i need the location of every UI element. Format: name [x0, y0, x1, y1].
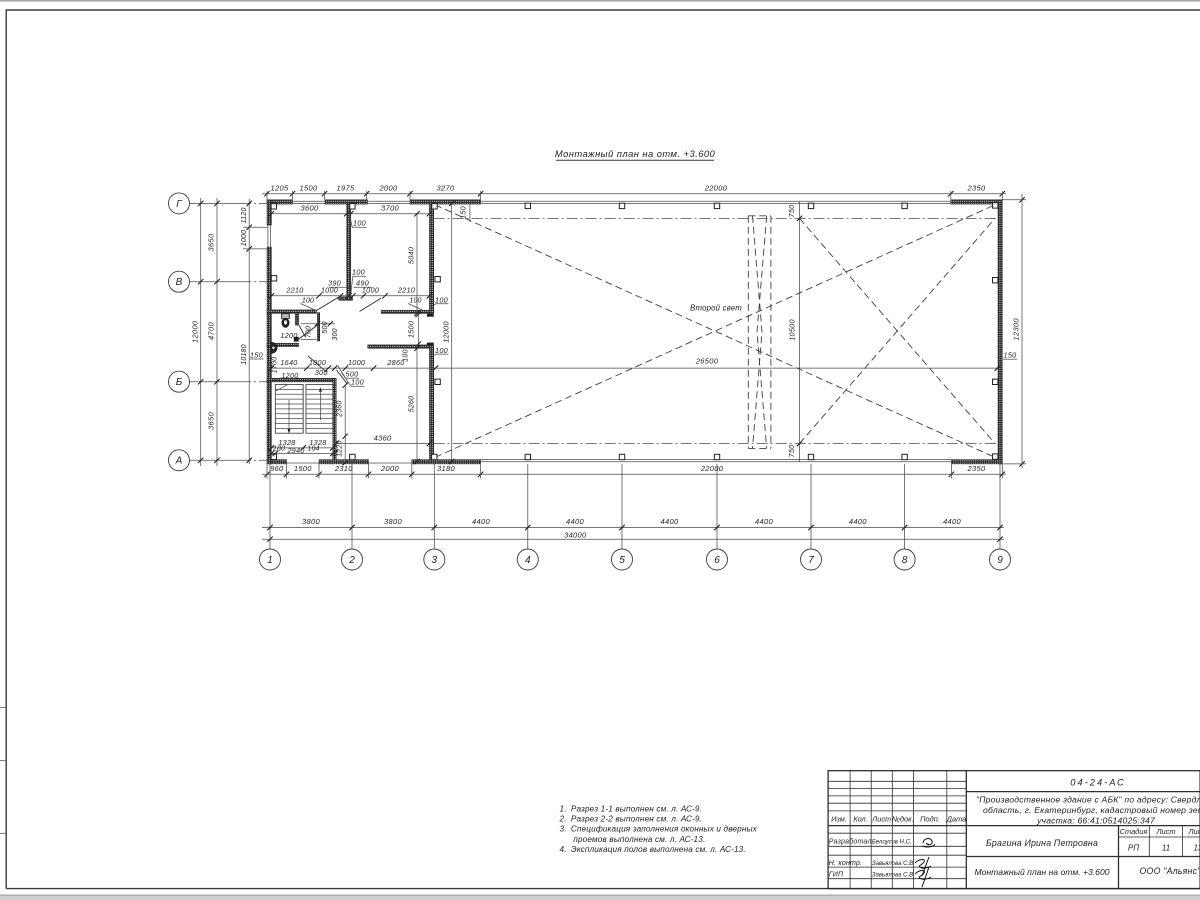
svg-text:Кол.: Кол. — [853, 814, 868, 823]
svg-text:3800: 3800 — [384, 517, 402, 526]
svg-text:Второй свет: Второй свет — [690, 304, 742, 313]
svg-text:РП: РП — [1128, 844, 1139, 853]
svg-text:А: А — [175, 456, 183, 467]
svg-text:22000: 22000 — [704, 184, 728, 193]
svg-text:9: 9 — [997, 555, 1003, 566]
svg-text:6: 6 — [714, 555, 720, 566]
svg-text:10500: 10500 — [787, 319, 796, 341]
svg-text:Лист: Лист — [1155, 827, 1175, 836]
svg-text:1000: 1000 — [309, 358, 326, 367]
svg-text:1700: 1700 — [271, 357, 278, 373]
svg-text:04-24-АС: 04-24-АС — [1070, 777, 1126, 788]
svg-text:Белоусов Н.С.: Белоусов Н.С. — [872, 839, 912, 845]
svg-text:3700: 3700 — [381, 204, 399, 213]
svg-text:1000: 1000 — [241, 230, 248, 246]
svg-text:1000: 1000 — [348, 358, 365, 367]
svg-text:Брагина Ирина Петровна: Брагина Ирина Петровна — [986, 838, 1098, 848]
svg-text:2210: 2210 — [397, 286, 415, 295]
svg-text:2350: 2350 — [967, 464, 986, 473]
svg-text:100: 100 — [353, 218, 366, 227]
svg-text:3600: 3600 — [301, 204, 319, 213]
svg-text:1500: 1500 — [407, 321, 416, 338]
svg-text:3650: 3650 — [207, 233, 216, 251]
svg-text:5: 5 — [619, 555, 625, 566]
svg-text:1. Разрез 1-1 выполнен см. л.: 1. Разрез 1-1 выполнен см. л. АС-9. — [560, 804, 703, 813]
svg-text:Лист: Лист — [1187, 827, 1200, 836]
svg-text:1220: 1220 — [337, 440, 344, 456]
svg-text:2360: 2360 — [337, 401, 344, 418]
svg-text:100: 100 — [352, 268, 365, 277]
svg-text:3650: 3650 — [207, 412, 216, 430]
svg-text:3. Спецификация заполнения око: 3. Спецификация заполнения оконных и две… — [560, 825, 758, 834]
svg-text:300: 300 — [315, 368, 328, 377]
svg-text:390: 390 — [328, 279, 341, 288]
svg-text:100: 100 — [435, 346, 448, 355]
svg-text:22000: 22000 — [700, 464, 724, 473]
svg-text:12000: 12000 — [190, 320, 199, 343]
svg-text:4400: 4400 — [472, 517, 490, 526]
svg-text:104: 104 — [307, 445, 319, 452]
svg-text:300: 300 — [332, 328, 339, 340]
svg-text:4400: 4400 — [849, 517, 867, 526]
svg-text:1500: 1500 — [294, 464, 312, 473]
svg-text:1975: 1975 — [337, 184, 355, 193]
svg-text:проемов выполнена см. л. АС-13: проемов выполнена см. л. АС-13. — [573, 835, 705, 844]
svg-text:Монтажный план на отм. +3.600: Монтажный план на отм. +3.600 — [974, 867, 1109, 877]
svg-text:1120: 1120 — [241, 207, 248, 223]
svg-text:2: 2 — [348, 555, 355, 566]
svg-text:Дата: Дата — [946, 814, 967, 823]
svg-text:4: 4 — [525, 555, 531, 566]
svg-text:2000: 2000 — [380, 464, 399, 473]
svg-text:Подп.: Подп. — [920, 814, 940, 823]
svg-text:Завьялова С.В: Завьялова С.В — [872, 861, 913, 867]
svg-text:750: 750 — [787, 445, 796, 458]
svg-text:3180: 3180 — [437, 464, 455, 473]
svg-text:4400: 4400 — [661, 517, 679, 526]
svg-text:Монтажный план на отм. +3.600: Монтажный план на отм. +3.600 — [555, 148, 716, 159]
svg-text:Б: Б — [176, 377, 183, 388]
svg-text:4. Экспликация полов выполнена: 4. Экспликация полов выполнена см. л. АС… — [560, 845, 746, 854]
svg-text:4400: 4400 — [755, 517, 773, 526]
svg-text:2350: 2350 — [967, 184, 986, 193]
svg-text:10180: 10180 — [241, 344, 248, 364]
svg-text:Лист: Лист — [871, 814, 891, 823]
svg-text:750: 750 — [787, 205, 796, 218]
svg-text:180: 180 — [273, 445, 285, 452]
svg-text:5260: 5260 — [409, 396, 416, 412]
svg-text:Н. контр.: Н. контр. — [829, 860, 862, 867]
svg-text:участка: 66:41:0514025:347: участка: 66:41:0514025:347 — [1036, 815, 1156, 825]
svg-text:100: 100 — [409, 297, 421, 304]
svg-text:2310: 2310 — [334, 464, 353, 473]
svg-text:34000: 34000 — [564, 531, 587, 540]
svg-text:3270: 3270 — [437, 184, 455, 193]
svg-text:4400: 4400 — [943, 517, 961, 526]
svg-text:11: 11 — [1162, 844, 1170, 853]
svg-text:100: 100 — [435, 296, 448, 305]
svg-text:150: 150 — [250, 350, 263, 359]
svg-text:область, г. Екатеринбург, када: область, г. Екатеринбург, кадастровый но… — [983, 805, 1200, 815]
svg-text:100: 100 — [351, 378, 364, 387]
svg-text:2940: 2940 — [286, 446, 304, 455]
svg-text:960: 960 — [270, 464, 284, 473]
svg-text:26500: 26500 — [695, 357, 719, 366]
svg-text:100: 100 — [403, 349, 410, 361]
svg-text:1200: 1200 — [280, 331, 297, 340]
svg-text:Разработал: Разработал — [829, 837, 872, 845]
svg-text:"Производственное здание с АБК: "Производственное здание с АБК" по адрес… — [976, 795, 1200, 805]
svg-text:Стадия: Стадия — [1120, 827, 1148, 836]
svg-text:2. Разрез 2-2 выполнен см. л.: 2. Разрез 2-2 выполнен см. л. АС-9. — [559, 815, 703, 824]
svg-text:12300: 12300 — [1012, 318, 1021, 341]
svg-text:150: 150 — [459, 206, 468, 219]
svg-text:1205: 1205 — [271, 184, 289, 193]
svg-text:Изм.: Изм. — [831, 814, 847, 823]
svg-text:1500: 1500 — [300, 184, 318, 193]
svg-text:7: 7 — [808, 555, 814, 566]
svg-text:№док.: №док. — [892, 814, 914, 823]
svg-text:12000: 12000 — [441, 321, 450, 343]
svg-text:4400: 4400 — [566, 517, 584, 526]
svg-text:ГИП: ГИП — [829, 871, 844, 878]
svg-text:4700: 4700 — [207, 322, 216, 340]
svg-text:1640: 1640 — [280, 358, 297, 367]
svg-text:В: В — [176, 277, 183, 288]
svg-text:13: 13 — [1194, 844, 1200, 853]
svg-text:ООО "Альянс": ООО "Альянс" — [1139, 866, 1200, 876]
svg-text:5040: 5040 — [406, 247, 415, 264]
svg-text:1: 1 — [267, 555, 273, 566]
svg-text:8: 8 — [902, 555, 908, 566]
svg-text:150: 150 — [1004, 351, 1017, 360]
svg-text:100: 100 — [302, 297, 314, 304]
svg-text:2210: 2210 — [285, 286, 303, 295]
svg-text:1200: 1200 — [281, 371, 298, 380]
svg-text:500: 500 — [322, 321, 329, 333]
svg-text:Завьялова С.В: Завьялова С.В — [872, 872, 913, 878]
svg-text:4360: 4360 — [374, 434, 392, 443]
svg-text:3800: 3800 — [302, 517, 320, 526]
svg-text:700: 700 — [305, 326, 312, 338]
svg-text:2000: 2000 — [379, 184, 398, 193]
svg-text:3: 3 — [432, 555, 438, 566]
